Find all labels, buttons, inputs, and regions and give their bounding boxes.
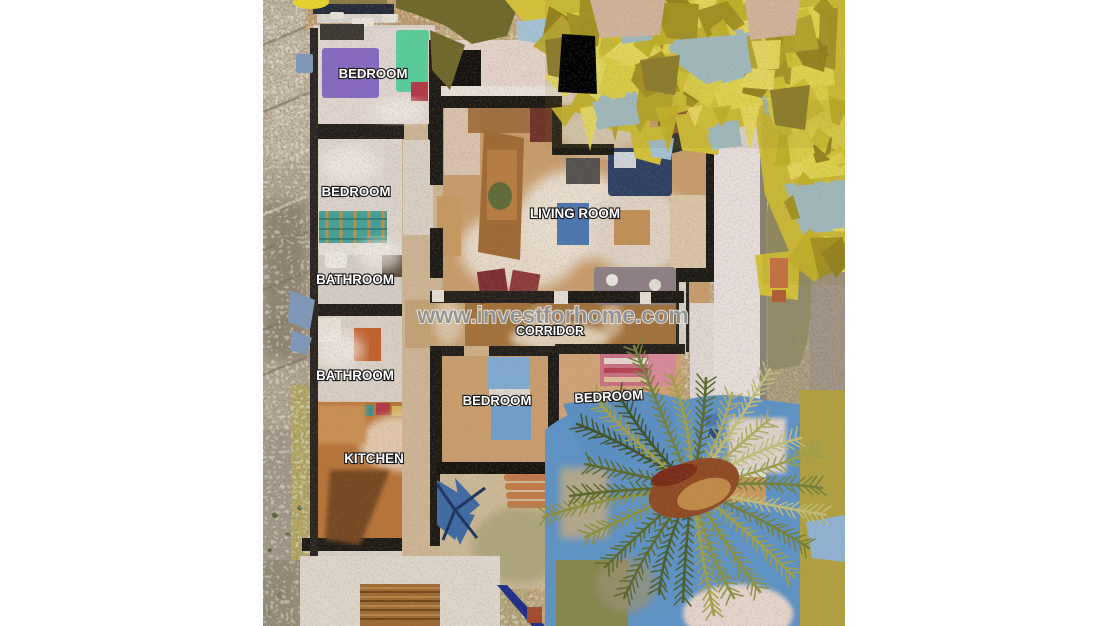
svg-text:BEDROOM: BEDROOM: [339, 66, 408, 81]
svg-text:LIVING ROOM: LIVING ROOM: [530, 206, 620, 221]
svg-text:BATHROOM: BATHROOM: [316, 272, 394, 287]
svg-text:KITCHEN: KITCHEN: [344, 451, 404, 466]
svg-text:BATHROOM: BATHROOM: [316, 368, 394, 383]
svg-text:BEDROOM: BEDROOM: [322, 184, 391, 199]
svg-text:BEDROOM: BEDROOM: [463, 393, 532, 408]
svg-text:www.investforhome.com: www.investforhome.com: [416, 302, 688, 328]
